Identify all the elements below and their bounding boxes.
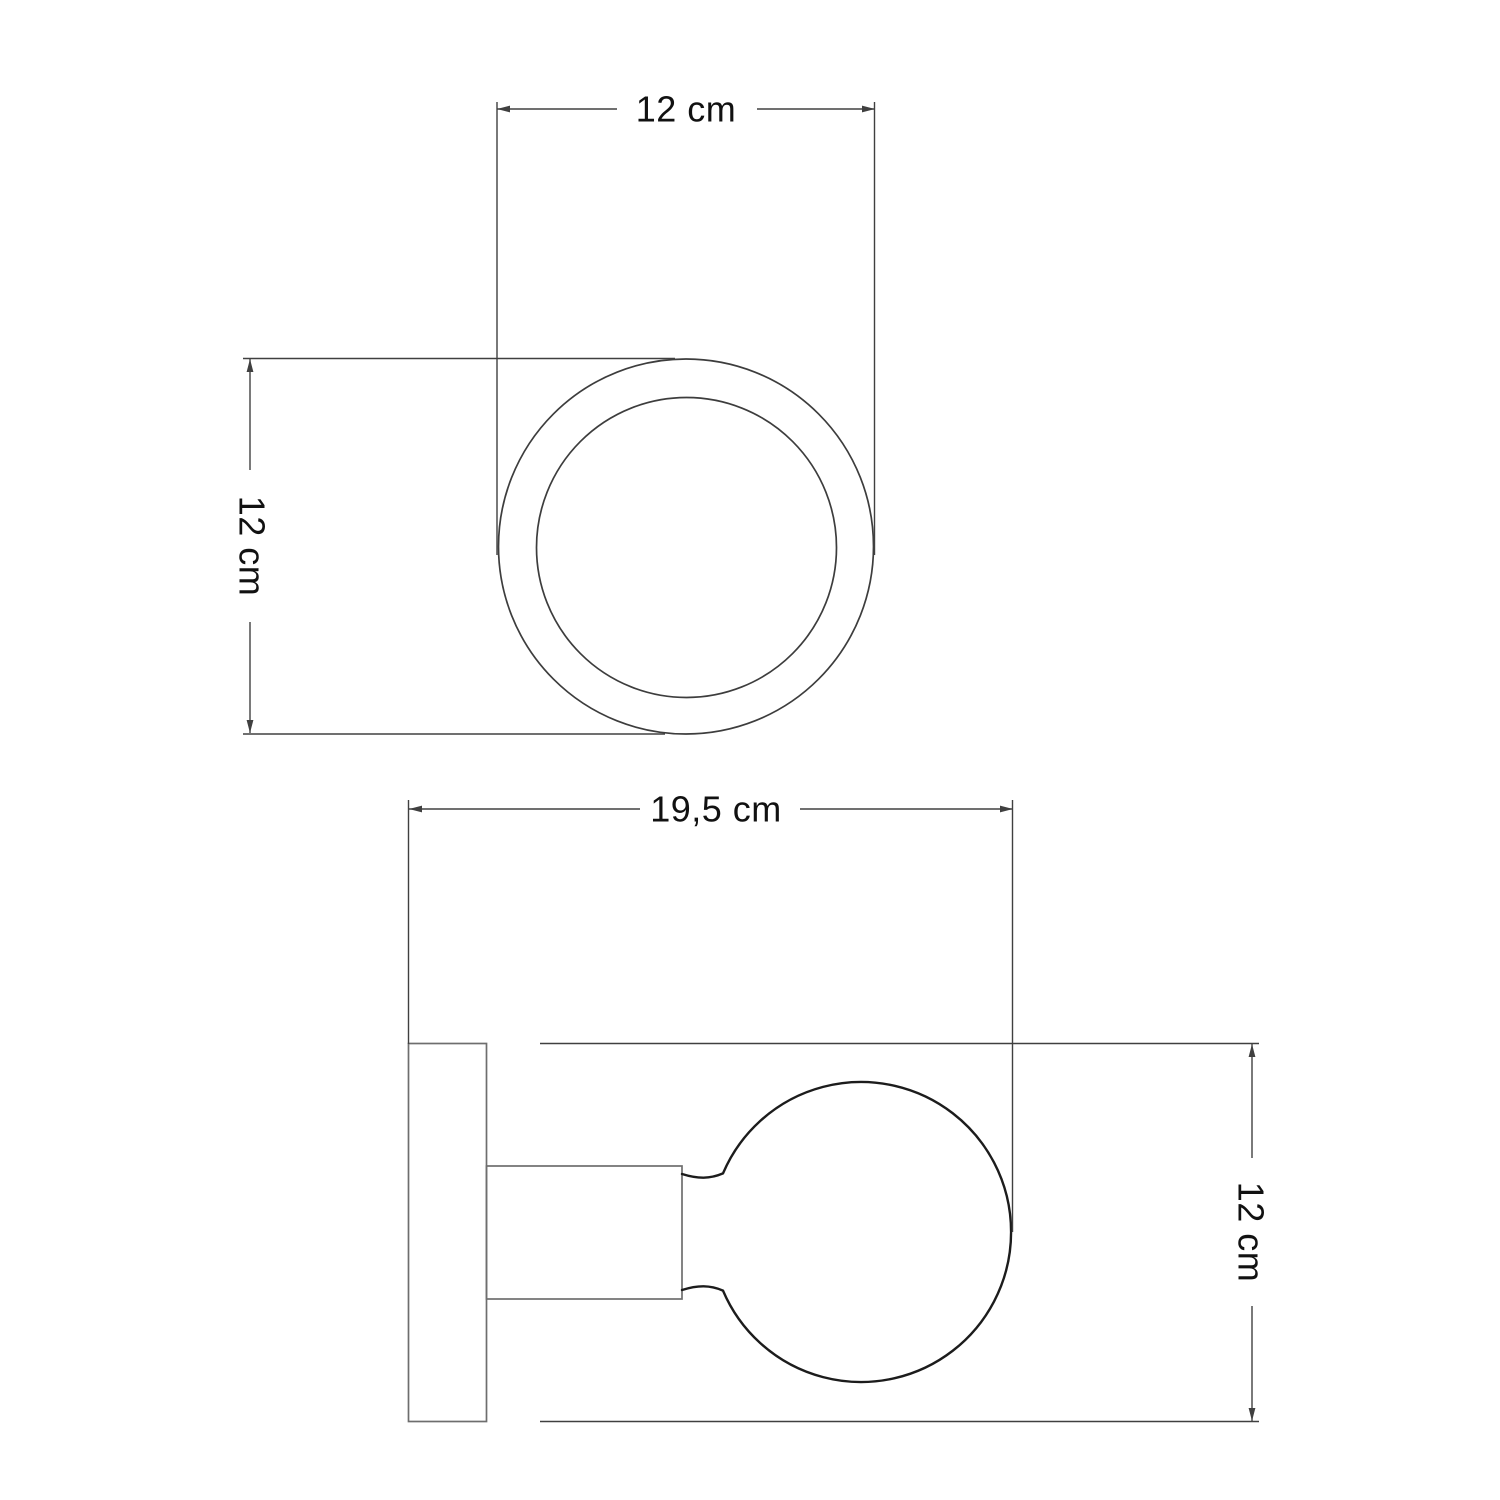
side-view-width-label: 19,5 cm (650, 789, 782, 830)
arrow-top-height-down (247, 720, 254, 733)
side-view-bulb-group (682, 1082, 1011, 1382)
top-view-outline-group (499, 359, 874, 734)
arrow-top-height-up (247, 359, 254, 372)
top-view-height-label: 12 cm (231, 496, 272, 597)
top-view-width-label: 12 cm (636, 89, 737, 130)
bulb-globe-outline (682, 1082, 1011, 1382)
dimension-diagram: 12 cm 12 cm 19,5 cm 12 cm (0, 0, 1500, 1500)
arrow-side-height-down (1249, 1408, 1256, 1421)
arrow-top-width-left (497, 106, 510, 113)
side-view-height-label: 12 cm (1230, 1182, 1271, 1283)
arrow-side-width-right (1000, 806, 1013, 813)
diagram-canvas: 12 cm 12 cm 19,5 cm 12 cm (0, 0, 1500, 1500)
arrow-side-height-up (1249, 1044, 1256, 1057)
dimension-labels-group: 12 cm 12 cm 19,5 cm 12 cm (231, 89, 1271, 1283)
wall-plate-outer-circle (499, 359, 874, 734)
arrow-top-width-right (862, 106, 875, 113)
socket-body-rect (487, 1166, 683, 1299)
dimension-lines-group (243, 102, 1259, 1422)
bulb-globe-inner-circle (537, 398, 837, 698)
dimension-arrows-group (247, 106, 1256, 1421)
arrow-side-width-left (409, 806, 422, 813)
wall-plate-rect (409, 1044, 487, 1422)
side-view-fixture-group (409, 1044, 683, 1422)
